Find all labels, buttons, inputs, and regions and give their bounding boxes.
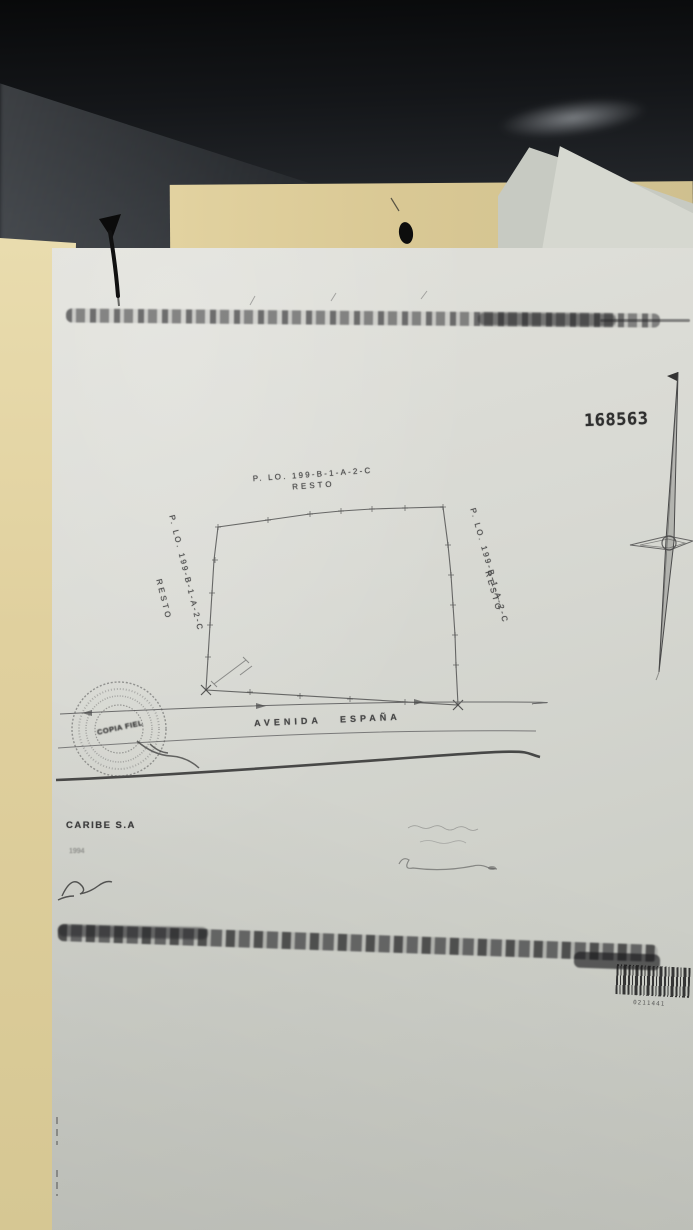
company-signature-flourish <box>58 882 112 901</box>
survey-tick-marks <box>205 504 459 705</box>
smudge-band-top-dark <box>478 312 616 326</box>
punch-hole <box>391 198 414 245</box>
barcode <box>615 964 690 998</box>
photo-of-survey-plan: 0211441 168563 P. LO. 199-B-1-A-2-C REST… <box>0 0 693 1230</box>
seal-scribble <box>137 741 199 768</box>
company-name: CARIBE S.A <box>66 820 136 831</box>
registry-number: 168563 <box>584 409 649 431</box>
plan-linework <box>0 0 693 1230</box>
lot-boundary <box>206 507 458 705</box>
handwritten-signature <box>399 826 497 870</box>
company-sub-text: 1994 <box>69 848 85 855</box>
smudge-band-top-tail <box>600 319 690 322</box>
faint-ticks <box>250 291 427 305</box>
dimension-note <box>211 657 252 687</box>
binder-pin <box>99 214 121 306</box>
